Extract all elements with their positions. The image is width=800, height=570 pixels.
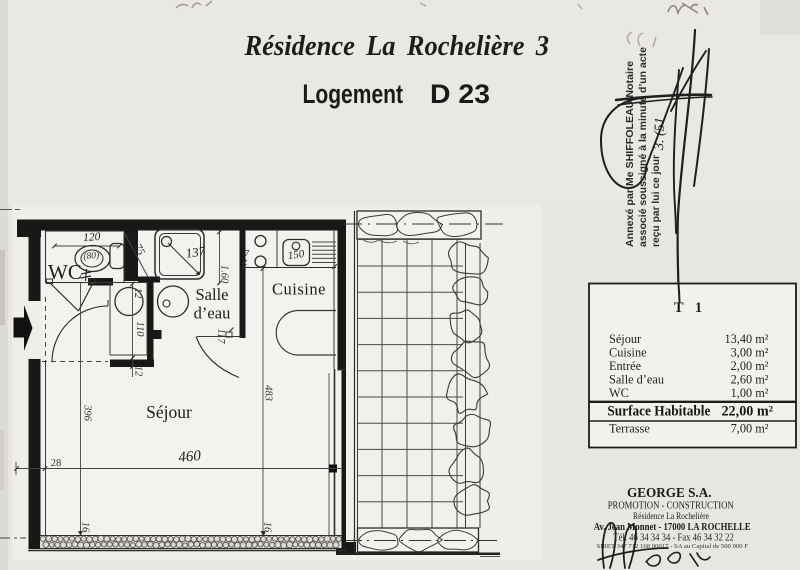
svg-text:117: 117 — [215, 329, 226, 345]
svg-text:Salle d’eau: Salle d’eau — [609, 373, 664, 387]
svg-text:Surface Habitable: Surface Habitable — [607, 404, 710, 420]
svg-text:Séjour: Séjour — [609, 332, 641, 346]
svg-text:Cuisine: Cuisine — [609, 346, 647, 360]
svg-text:1,00 m²: 1,00 m² — [731, 386, 769, 400]
svg-text:(80): (80) — [83, 250, 100, 262]
svg-text:Logement: Logement — [303, 79, 404, 109]
svg-text:150: 150 — [287, 248, 306, 262]
svg-text:12: 12 — [133, 366, 144, 377]
svg-text:1.60: 1.60 — [219, 265, 230, 284]
svg-text:Cuisine: Cuisine — [272, 280, 326, 299]
svg-text:SIRET 347 712 168 00017 - SA a: SIRET 347 712 168 00017 - SA au Capital … — [597, 543, 749, 550]
svg-text:120: 120 — [83, 231, 101, 244]
svg-text:13,40 m²: 13,40 m² — [725, 332, 769, 346]
svg-text:137: 137 — [185, 243, 207, 261]
svg-text:2,60 m²: 2,60 m² — [731, 373, 769, 387]
svg-text:Annexé par Me SHIFFOLEAU Notai: Annexé par Me SHIFFOLEAU Notaire — [625, 61, 636, 247]
svg-text:Séjour: Séjour — [146, 402, 192, 422]
svg-text:2,00 m²: 2,00 m² — [731, 359, 769, 373]
svg-text:WC: WC — [609, 386, 629, 400]
svg-text:Terrasse: Terrasse — [609, 422, 650, 436]
svg-text:28: 28 — [51, 458, 62, 469]
svg-text:reçu par lui ce jour: reçu par lui ce jour — [651, 155, 662, 247]
svg-text:Résidence La Rochelière 3: Résidence La Rochelière 3 — [244, 30, 549, 62]
svg-text:12: 12 — [132, 288, 143, 299]
svg-text:GEORGE S.A.: GEORGE S.A. — [627, 486, 712, 501]
svg-text:Salle: Salle — [196, 285, 229, 304]
svg-text:d’eau: d’eau — [194, 304, 231, 323]
svg-text:3,00 m²: 3,00 m² — [731, 346, 769, 360]
svg-text:T 1: T 1 — [674, 300, 706, 316]
svg-text:396: 396 — [82, 404, 93, 422]
svg-text:460: 460 — [178, 448, 202, 466]
svg-text:PROMOTION - CONSTRUCTION: PROMOTION - CONSTRUCTION — [608, 501, 734, 512]
svg-text:D 23: D 23 — [430, 79, 490, 109]
svg-text:110: 110 — [134, 322, 145, 338]
svg-text:Entrée: Entrée — [609, 359, 642, 373]
svg-text:Résidence La Rochelière: Résidence La Rochelière — [633, 511, 710, 522]
svg-text:7,00 m²: 7,00 m² — [731, 422, 769, 436]
svg-text:associé soussigné à la minute: associé soussigné à la minute d’un acte — [638, 47, 649, 247]
svg-text:22,00 m²: 22,00 m² — [721, 404, 773, 420]
svg-text:483: 483 — [263, 385, 274, 401]
svg-text:Tél. 46 34 34 34 - Fax 46 34 3: Tél. 46 34 34 34 - Fax 46 34 32 22 — [613, 532, 734, 543]
